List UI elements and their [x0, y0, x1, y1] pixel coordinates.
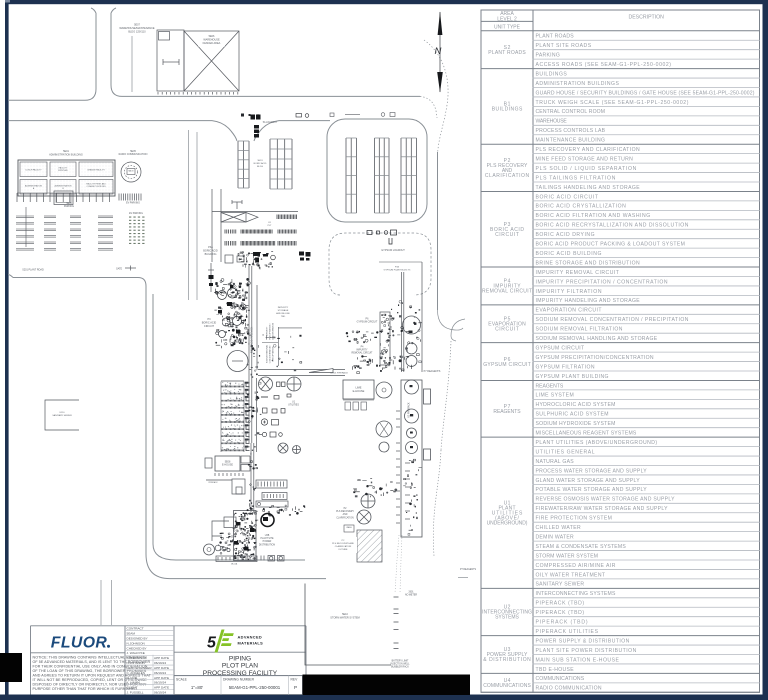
svg-text:DRAWING NUMBER: DRAWING NUMBER	[223, 677, 255, 681]
svg-text:IMPURITY HANDELING AND STORAGE: IMPURITY HANDELING AND STORAGE	[536, 298, 641, 304]
svg-text:C. ANGELES: C. ANGELES	[127, 671, 145, 675]
svg-text:CONTRACT: CONTRACT	[127, 627, 144, 631]
svg-text:IMPURITY: IMPURITY	[267, 326, 269, 336]
svg-text:MATERIALS: MATERIALS	[238, 640, 264, 645]
svg-text:UNDERGROUND): UNDERGROUND)	[487, 520, 528, 526]
svg-text:J. FUSSELL: J. FUSSELL	[127, 690, 144, 694]
svg-text:PIPERACK (TBD): PIPERACK (TBD)	[536, 620, 588, 626]
svg-text:POWER: POWER	[263, 541, 272, 543]
svg-text:CLIENT: CLIENT	[127, 686, 138, 690]
svg-text:POTABLE WATER STORAGE AND SUPP: POTABLE WATER STORAGE AND SUPPLY	[536, 487, 648, 493]
svg-text:BORIC ACID: BORIC ACID	[254, 162, 267, 165]
svg-text:BUILDINGS: BUILDINGS	[492, 107, 523, 113]
svg-text:APP DATE: APP DATE	[154, 676, 169, 680]
svg-text:REVERSE OSMOSIS WATER STORAGE: REVERSE OSMOSIS WATER STORAGE AND SUPPLY	[536, 497, 676, 503]
svg-text:GYPSUM CIRCUIT: GYPSUM CIRCUIT	[483, 362, 531, 368]
svg-text:UTILITIES: UTILITIES	[288, 405, 299, 407]
svg-text:P7 REAGENTS: P7 REAGENTS	[460, 568, 477, 571]
svg-text:ADMINISTRATION BUILDING: ADMINISTRATION BUILDING	[49, 153, 83, 156]
svg-text:CONCENTRATION /: CONCENTRATION /	[269, 344, 272, 363]
svg-text:WASH: WASH	[346, 526, 352, 529]
svg-text:SODIUM REMOVAL: SODIUM REMOVAL	[266, 344, 269, 363]
svg-text:IMPURITY REMOVAL CIRCUIT: IMPURITY REMOVAL CIRCUIT	[536, 270, 619, 276]
svg-text:06/19/24: 06/19/24	[154, 661, 166, 665]
svg-text:SANITARY SEWER: SANITARY SEWER	[536, 582, 585, 588]
svg-text:IMPURITY FILTRATION: IMPURITY FILTRATION	[536, 289, 602, 295]
svg-text:BUILDING: BUILDING	[205, 253, 217, 256]
svg-text:PIPERACK: PIPERACK	[208, 481, 218, 484]
svg-text:CHILLED WATER: CHILLED WATER	[536, 525, 582, 531]
svg-text:GYPSUM CIRCUIT: GYPSUM CIRCUIT	[357, 321, 378, 324]
svg-text:APP DATE: APP DATE	[154, 686, 169, 690]
svg-text:PARKING: PARKING	[64, 205, 74, 208]
svg-text:POWER SUPPLY & DISTRIBUTION: POWER SUPPLY & DISTRIBUTION	[536, 638, 630, 644]
svg-text:LUNCH FACILITY: LUNCH FACILITY	[25, 169, 42, 172]
svg-text:5E19: 5E19	[257, 160, 263, 162]
svg-text:SCALE: SCALE	[176, 677, 188, 681]
svg-text:PROCESS WATER STORAGE AND SUPP: PROCESS WATER STORAGE AND SUPPLY	[536, 468, 648, 474]
svg-text:GYPSUM PLANT BUILDING: GYPSUM PLANT BUILDING	[536, 374, 609, 380]
svg-text:COMMUNICATIONS: COMMUNICATIONS	[483, 683, 531, 689]
svg-text:COMMS POSITIONS: COMMS POSITIONS	[86, 186, 106, 188]
svg-text:BORIC ACID PRODUCT PACKING & L: BORIC ACID PRODUCT PACKING & LOADOUT SYS…	[536, 242, 685, 248]
svg-text:GYPSUM LOADOUT: GYPSUM LOADOUT	[381, 249, 405, 252]
svg-text:DESIGNED BY: DESIGNED BY	[127, 637, 148, 641]
svg-text:FENCED AREA: FENCED AREA	[203, 42, 221, 45]
svg-text:COMPRESSED AIR/MINE AIR: COMPRESSED AIR/MINE AIR	[536, 563, 616, 569]
svg-text:PARKING: PARKING	[536, 53, 560, 59]
svg-text:BORIC ACID CIRCUIT: BORIC ACID CIRCUIT	[536, 194, 599, 200]
svg-text:EV PARKING: EV PARKING	[126, 202, 140, 205]
svg-text:PRECIPITATION: PRECIPITATION	[272, 346, 275, 362]
svg-text:PLANT UTILITIES (ABOVE/UNDERGR: PLANT UTILITIES (ABOVE/UNDERGROUND)	[536, 440, 658, 446]
svg-text:GYPSUM PLANT BLDG 75: GYPSUM PLANT BLDG 75	[384, 268, 411, 271]
svg-text:DISTRIBUTION: DISTRIBUTION	[259, 544, 276, 546]
svg-text:GYPSUM FILTRATION: GYPSUM FILTRATION	[536, 364, 595, 370]
svg-text:BATTERY LIMIT: BATTERY LIMIT	[392, 660, 409, 663]
svg-text:2601: 2601	[408, 592, 414, 594]
svg-text:FIREWATER/RAW WATER STORAGE AN: FIREWATER/RAW WATER STORAGE AND SUPPLY	[536, 506, 669, 512]
svg-text:TAILINGS HANDELING AND STORAGE: TAILINGS HANDELING AND STORAGE	[536, 185, 641, 191]
svg-text:INTERCONNECTING SYSTEMS: INTERCONNECTING SYSTEMS	[536, 591, 616, 597]
svg-text:CLARIFICATION: CLARIFICATION	[336, 516, 354, 519]
svg-text:FACILITY: FACILITY	[59, 167, 68, 170]
svg-text:MISCELLANEOUS REAGENT SYSTEMS: MISCELLANEOUS REAGENT SYSTEMS	[536, 431, 637, 437]
svg-text:PLT: PLT	[268, 225, 273, 227]
svg-text:PROCESS CONTROLS LAB: PROCESS CONTROLS LAB	[536, 128, 606, 134]
svg-text:5EAM-G1-PPL-250-00001: 5EAM-G1-PPL-250-00001	[229, 685, 281, 690]
svg-text:PURPOSE OTHER THAN THAT FOR WH: PURPOSE OTHER THAN THAT FOR WHICH IS FUR…	[33, 687, 139, 691]
svg-text:APP DATE: APP DATE	[154, 656, 169, 660]
svg-text:EV PARKING: EV PARKING	[129, 212, 143, 215]
svg-text:LIME SYSTEM: LIME SYSTEM	[536, 393, 574, 399]
svg-text:CLARIFICATION: CLARIFICATION	[485, 173, 530, 179]
svg-text:06/19/24: 06/19/24	[154, 671, 166, 675]
svg-text:CIRCUIT: CIRCUIT	[204, 325, 215, 328]
svg-text:NATURAL GAS: NATURAL GAS	[536, 459, 575, 465]
svg-text:FIRE PROTECTION SYSTEM: FIRE PROTECTION SYSTEM	[536, 516, 612, 522]
svg-text:RADIO: RADIO	[128, 170, 134, 173]
svg-text:N: N	[435, 46, 442, 57]
svg-text:COMMUNICATIONS: COMMUNICATIONS	[536, 676, 585, 682]
svg-text:J. WALDYKE: J. WALDYKE	[127, 651, 145, 655]
svg-text:SUPERVISOR: SUPERVISOR	[127, 656, 148, 660]
svg-text:REMOVAL CIRCUIT: REMOVAL CIRCUIT	[482, 289, 532, 295]
svg-text:PLS RECOVERY AND CLARIFICATION: PLS RECOVERY AND CLARIFICATION	[536, 147, 641, 153]
svg-text:& DISTRIBUTION: & DISTRIBUTION	[483, 657, 531, 663]
svg-text:REAGENTS: REAGENTS	[493, 409, 521, 415]
svg-text:GUARD HOUSE / SECURITY BUILDIN: GUARD HOUSE / SECURITY BUILDINGS / GATE …	[536, 90, 755, 96]
svg-text:P7 REAGENTS: P7 REAGENTS	[424, 370, 441, 373]
svg-text:CENTRAL CONTROL ROOM: CENTRAL CONTROL ROOM	[536, 109, 606, 115]
svg-text:BORIC ACID RECRYSTALLIZATION A: BORIC ACID RECRYSTALLIZATION AND DISSOLU…	[536, 223, 689, 229]
svg-text:PLS RECOVERY AND: PLS RECOVERY AND	[332, 542, 354, 545]
svg-text:UNIT TYPE: UNIT TYPE	[494, 24, 521, 30]
svg-text:5E04: 5E04	[66, 203, 72, 205]
svg-text:FUTURE: FUTURE	[339, 549, 348, 551]
svg-text:CHECKED BY: CHECKED BY	[127, 646, 147, 650]
svg-text:BORIC ACID FILTRATION AND WASH: BORIC ACID FILTRATION AND WASHING	[536, 213, 651, 219]
svg-text:ADMINISTRATION: ADMINISTRATION	[55, 185, 73, 188]
svg-text:SYSTEMS: SYSTEMS	[495, 615, 519, 621]
svg-text:SODIUM HYDROXIDE SYSTEM: SODIUM HYDROXIDE SYSTEM	[536, 421, 616, 427]
svg-text:5E-02A: 5E-02A	[231, 563, 238, 566]
svg-text:INJECTION WELL: INJECTION WELL	[390, 664, 410, 666]
svg-text:IMPURITY PRECIPITATION / CONCE: IMPURITY PRECIPITATION / CONCENTRATION	[536, 279, 668, 285]
svg-text:1"=80': 1"=80'	[191, 685, 203, 690]
svg-text:DEMIN WATER: DEMIN WATER	[536, 534, 575, 540]
svg-text:N.JOHNSON: N.JOHNSON	[127, 661, 145, 665]
svg-text:RADIO COMMUNICATION: RADIO COMMUNICATION	[119, 153, 148, 156]
svg-text:GYPSUM CIRCUIT: GYPSUM CIRCUIT	[536, 345, 585, 351]
svg-text:MAINTENANCE BUILDING: MAINTENANCE BUILDING	[536, 138, 606, 144]
svg-text:OILY WATER TREATMENT: OILY WATER TREATMENT	[536, 572, 606, 578]
svg-text:WAREHOUSE: WAREHOUSE	[536, 119, 568, 125]
svg-text:STEAM & CONDENSATE SYSTEMS: STEAM & CONDENSATE SYSTEMS	[536, 544, 627, 550]
svg-text:PIPERACK (TBD): PIPERACK (TBD)	[536, 601, 585, 607]
svg-text:K. HAMM: K. HAMM	[127, 681, 141, 685]
svg-text:U3B: U3B	[265, 535, 270, 537]
svg-text:SODIUM REMOVAL FILTRATION: SODIUM REMOVAL FILTRATION	[536, 327, 623, 333]
svg-text:BLDG 125X110: BLDG 125X110	[128, 30, 146, 33]
svg-text:RADIO COMMUNICATION: RADIO COMMUNICATION	[536, 686, 602, 692]
svg-text:MAIN SUB STATION E-HOUSE: MAIN SUB STATION E-HOUSE	[536, 657, 620, 663]
svg-text:PLANT SITE: PLANT SITE	[260, 537, 274, 540]
svg-text:U2/U3 PIPERACK: U2/U3 PIPERACK	[330, 372, 348, 375]
svg-text:CIRCUIT: CIRCUIT	[495, 326, 519, 332]
svg-text:APP DATE: APP DATE	[154, 666, 169, 670]
svg-text:5EAM: 5EAM	[127, 632, 136, 636]
svg-text:PLANT ROADS: PLANT ROADS	[488, 50, 526, 56]
svg-text:PLS RECOVERY: PLS RECOVERY	[336, 511, 354, 513]
svg-text:IMPURITY: IMPURITY	[357, 350, 368, 352]
svg-text:GLAND WATER STORAGE AND SUPPLY: GLAND WATER STORAGE AND SUPPLY	[536, 478, 641, 484]
svg-text:BORIC ACID DRYING: BORIC ACID DRYING	[536, 232, 595, 238]
svg-text:CLARIFICATION: CLARIFICATION	[335, 545, 352, 548]
svg-text:PRECIPITATION /: PRECIPITATION /	[269, 323, 272, 340]
svg-text:BUILDINGS: BUILDINGS	[536, 71, 568, 77]
svg-text:BORIC ACID BUILDING: BORIC ACID BUILDING	[536, 251, 602, 257]
svg-text:SODIUM REMOVAL HANDLING AND ST: SODIUM REMOVAL HANDLING AND STORAGE	[536, 336, 658, 342]
svg-text:5A LOADOUT: 5A LOADOUT	[263, 121, 278, 124]
svg-text:5: 5	[207, 635, 217, 652]
svg-text:AND RE-USE: AND RE-USE	[276, 312, 290, 315]
svg-text:TBD: TBD	[281, 316, 286, 318]
svg-text:CIRCUIT: CIRCUIT	[495, 232, 519, 238]
svg-text:EVAPORATION CIRCUIT: EVAPORATION CIRCUIT	[536, 308, 602, 314]
svg-text:LEAD ENGINEER: LEAD ENGINEER	[127, 666, 153, 670]
svg-text:REV: REV	[291, 677, 299, 681]
svg-text:STORAGE: STORAGE	[278, 309, 289, 312]
svg-text:FLUOR: FLUOR	[51, 634, 108, 651]
svg-text:LEVEL 2: LEVEL 2	[497, 17, 517, 23]
svg-text:REAGENTS: REAGENTS	[536, 383, 564, 389]
svg-text:ADVANCED: ADVANCED	[238, 634, 263, 639]
svg-text:06/19/24: 06/19/24	[154, 681, 166, 685]
svg-text:BRINE STORAGE AND DISTRIBUTION: BRINE STORAGE AND DISTRIBUTION	[536, 260, 641, 266]
svg-text:PLS TAILINGS FILTRATION: PLS TAILINGS FILTRATION	[536, 175, 616, 181]
svg-text:BUBBLER RACK: BUBBLER RACK	[391, 666, 409, 669]
svg-text:N.JOHNSON: N.JOHNSON	[127, 641, 145, 645]
svg-text:S201 PLANT ROAD: S201 PLANT ROAD	[22, 269, 44, 272]
svg-text:ACCESS ROADS (SEE 5EAM-G1-PPL-: ACCESS ROADS (SEE 5EAM-G1-PPL-250-0002)	[536, 62, 672, 68]
svg-text:DESCRIPTION: DESCRIPTION	[628, 14, 664, 20]
svg-text:P: P	[294, 685, 297, 690]
svg-text:REMOVAL CIRCUIT: REMOVAL CIRCUIT	[352, 352, 374, 355]
svg-text:U110: U110	[59, 412, 65, 414]
svg-text:LIME: LIME	[355, 386, 361, 390]
svg-text:STORM WATER SYSTEM: STORM WATER SYSTEM	[330, 616, 359, 619]
svg-text:SANITARY SEWER: SANITARY SEWER	[52, 414, 72, 417]
svg-text:SODIUM REMOVAL CONCENTRATION /: SODIUM REMOVAL CONCENTRATION / PRECIPITA…	[536, 317, 689, 323]
svg-text:AND: AND	[343, 513, 348, 516]
svg-text:06/19/24: 06/19/24	[154, 690, 166, 694]
svg-text:TBD E-HOUSE: TBD E-HOUSE	[536, 667, 575, 673]
svg-text:PLANT ROADS: PLANT ROADS	[536, 34, 575, 40]
svg-text:FLUOR: FLUOR	[127, 676, 138, 680]
svg-text:PIPERACK UTILITIES: PIPERACK UTILITIES	[536, 629, 599, 635]
svg-text:P1B: P1B	[395, 267, 400, 269]
svg-text:MINE FEED STORAGE AND RETURN: MINE FEED STORAGE AND RETURN	[536, 156, 634, 162]
svg-text:FACILITY FIRST AID/: FACILITY FIRST AID/	[86, 183, 106, 186]
svg-text:BLDG: BLDG	[257, 166, 263, 168]
svg-text:PIPING: PIPING	[229, 655, 251, 662]
svg-text:ADMINISTRATION: ADMINISTRATION	[25, 185, 43, 188]
svg-text:BORIC ACID CRYSTALLIZATION: BORIC ACID CRYSTALLIZATION	[536, 204, 627, 210]
svg-text:UTILITIES GENERAL: UTILITIES GENERAL	[536, 449, 595, 455]
svg-text:CHANGE FACILITY: CHANGE FACILITY	[87, 169, 105, 172]
svg-text:PLANT SITE POWER DISTRIBUTION: PLANT SITE POWER DISTRIBUTION	[536, 648, 637, 654]
svg-text:NO METER: NO METER	[405, 595, 417, 597]
svg-text:FIRST AID: FIRST AID	[58, 169, 68, 172]
svg-text:PLOT PLAN: PLOT PLAN	[222, 663, 258, 670]
svg-text:PIPERACK (TBD): PIPERACK (TBD)	[536, 610, 585, 616]
svg-text:E-HOUSE: E-HOUSE	[222, 464, 233, 467]
svg-text:GATE: GATE	[116, 268, 123, 271]
svg-text:TRUCK WEIGH SCALE (SEE 5EAM-G1: TRUCK WEIGH SCALE (SEE 5EAM-G1-PPL-250-0…	[536, 100, 689, 106]
svg-text:HYDROCLORIC ACID SYSTEM: HYDROCLORIC ACID SYSTEM	[536, 402, 616, 408]
svg-text:CONCENTRATION: CONCENTRATION	[272, 322, 275, 340]
svg-text:ADMINISTRATION BUILDINGS: ADMINISTRATION BUILDINGS	[536, 81, 620, 87]
svg-text:E-HOUSE: E-HOUSE	[353, 389, 365, 393]
svg-text:PLS SOLID / LIQUID SEPARATION: PLS SOLID / LIQUID SEPARATION	[536, 166, 637, 172]
svg-text:SULPHURIC ACID SYSTEM: SULPHURIC ACID SYSTEM	[536, 412, 609, 418]
svg-text:GYPSUM PRECIPITATION/CONCENTRA: GYPSUM PRECIPITATION/CONCENTRATION	[536, 355, 654, 361]
svg-text:IMPURITY: IMPURITY	[278, 307, 289, 309]
svg-text:STORM WATER SYSTEM: STORM WATER SYSTEM	[536, 553, 599, 559]
svg-text:PLANT SITE ROADS: PLANT SITE ROADS	[536, 43, 592, 49]
